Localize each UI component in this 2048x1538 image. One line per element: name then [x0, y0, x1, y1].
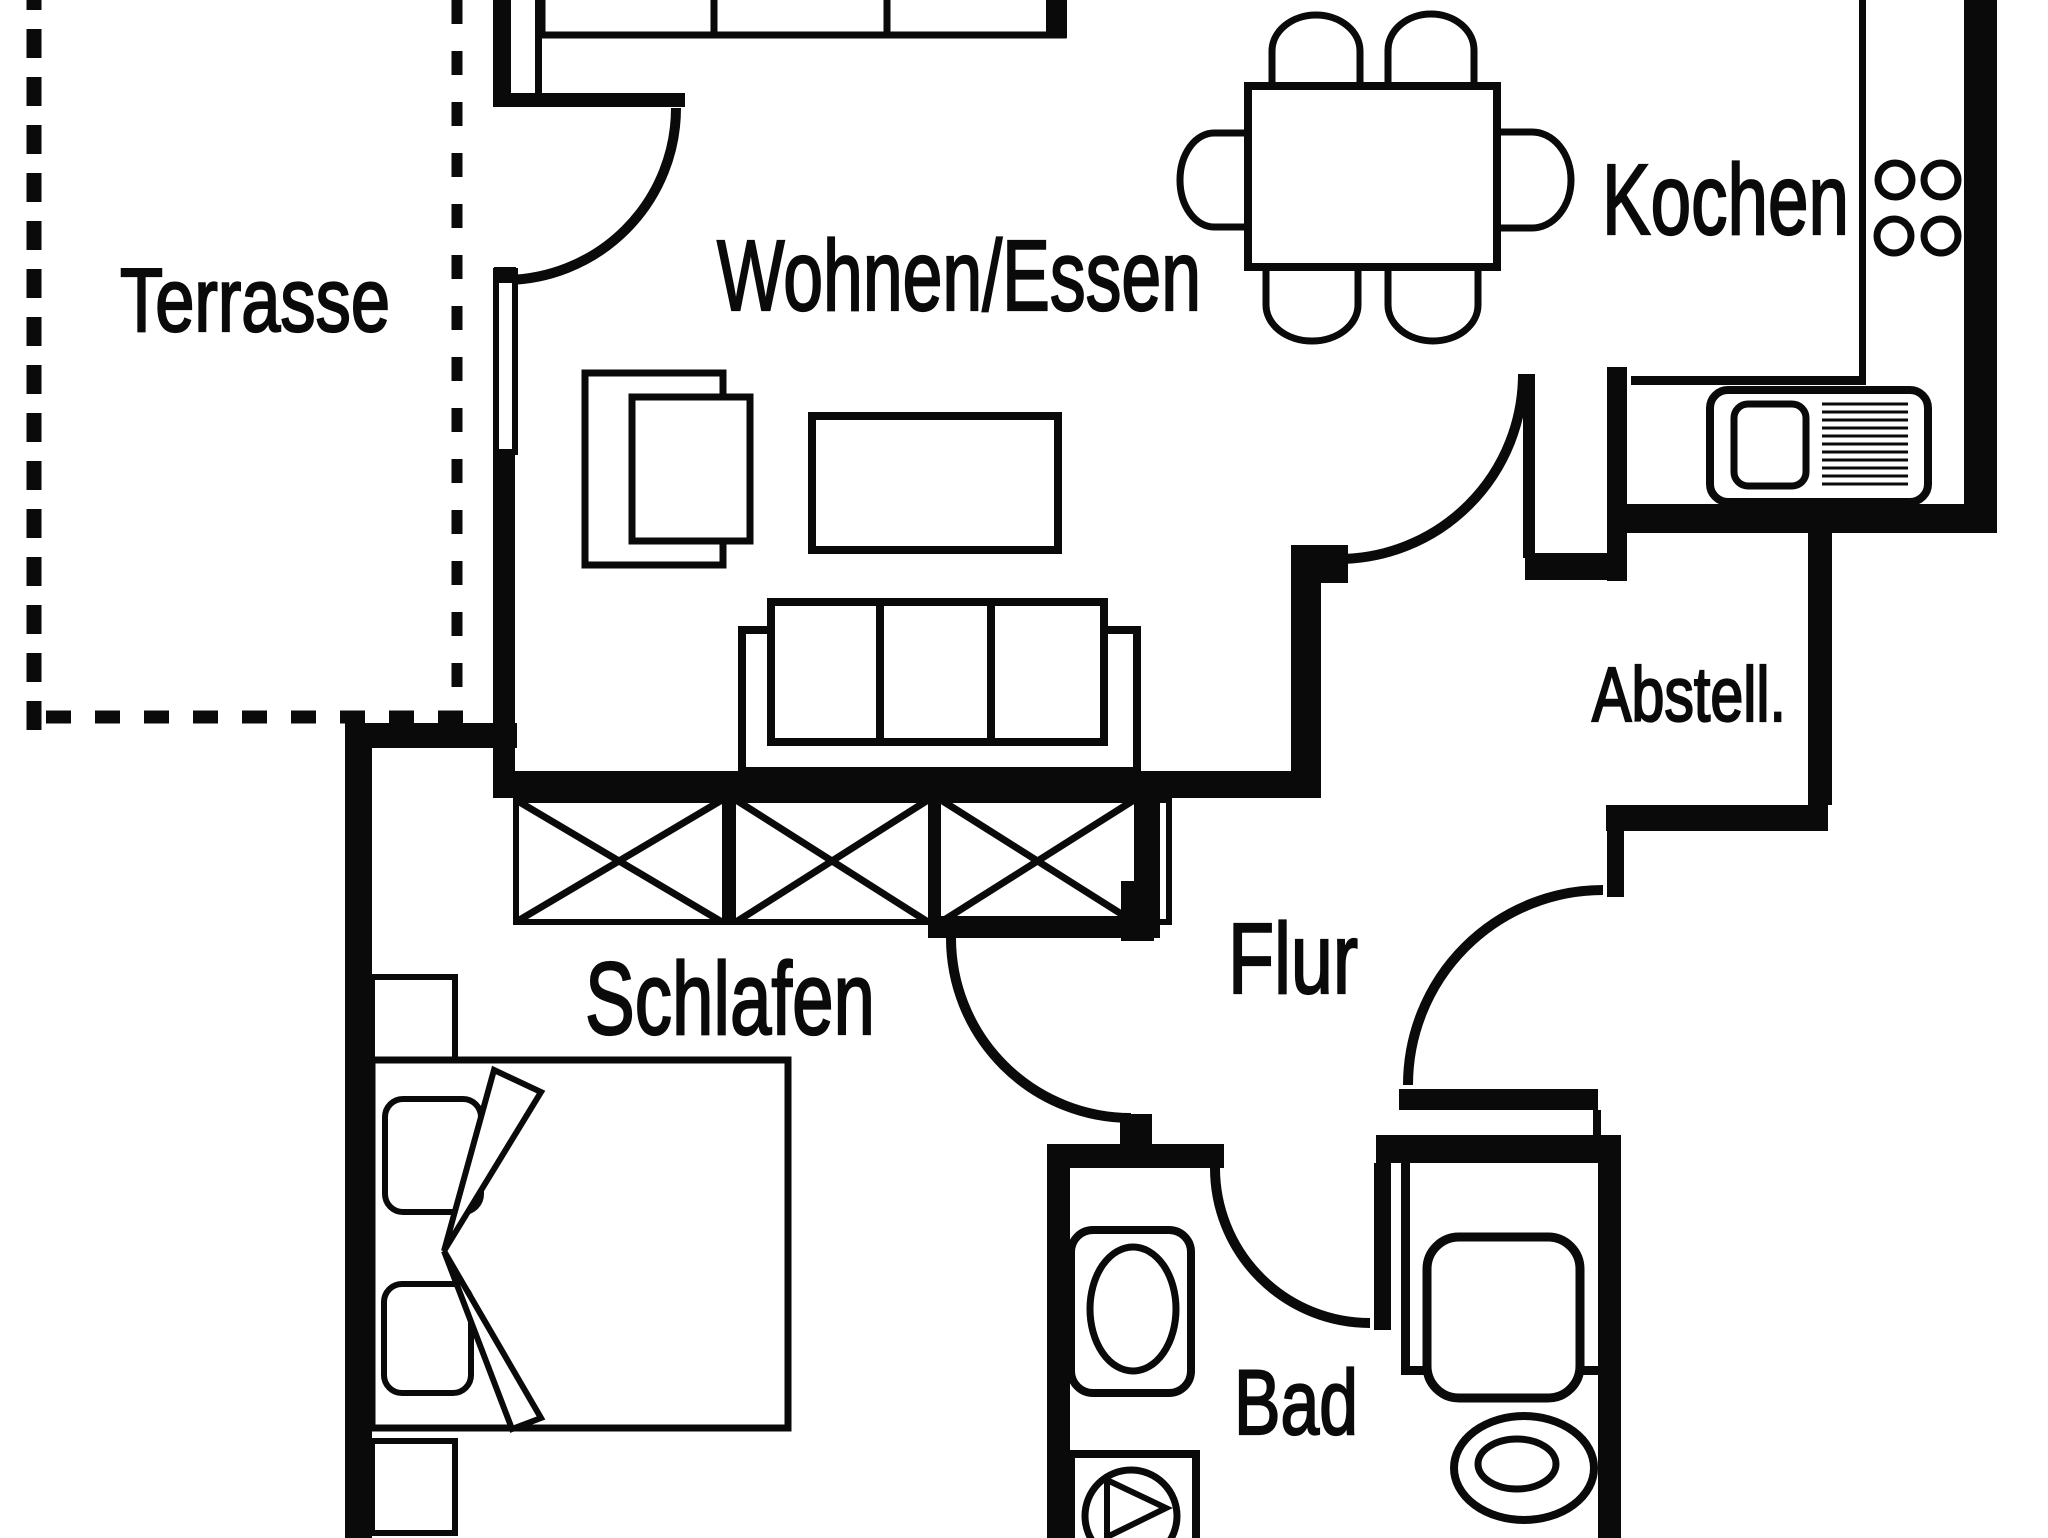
svg-text:Flur: Flur — [1228, 903, 1358, 1015]
svg-text:Wohnen/Essen: Wohnen/Essen — [717, 220, 1201, 332]
svg-text:Abstell.: Abstell. — [1592, 652, 1786, 738]
svg-text:Terrasse: Terrasse — [120, 251, 390, 351]
svg-text:Bad: Bad — [1234, 1352, 1358, 1454]
svg-text:Kochen: Kochen — [1602, 144, 1849, 256]
svg-text:Schlafen: Schlafen — [585, 941, 875, 1056]
